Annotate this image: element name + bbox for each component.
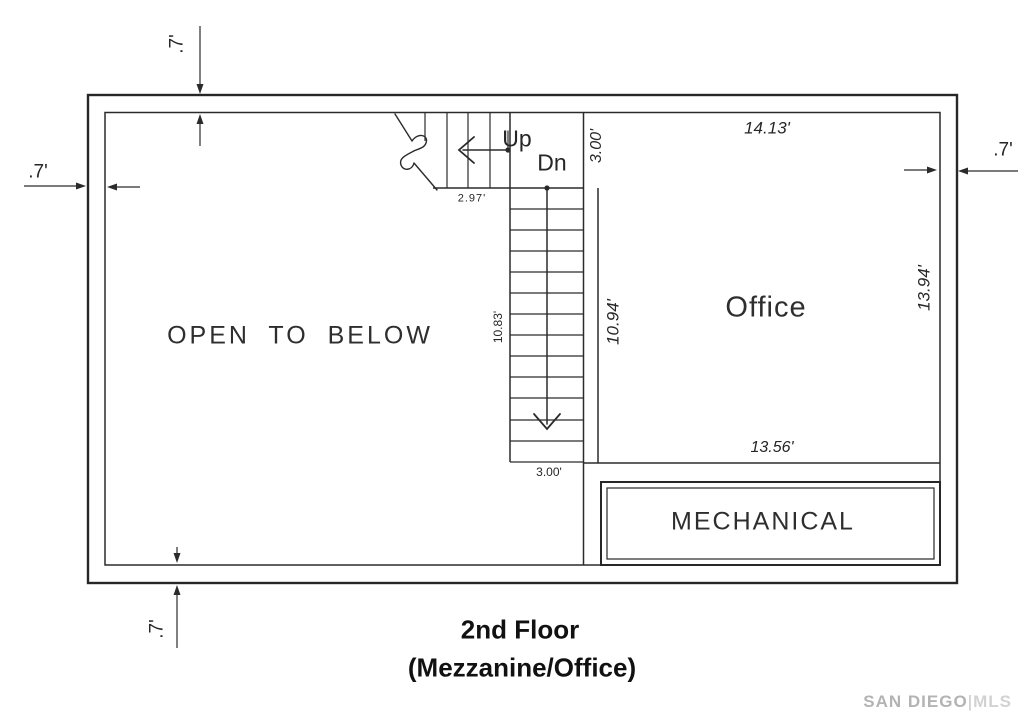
floor-plan-page: OPEN TO BELOW Office MECHANICAL Up Dn .7… <box>0 0 1024 717</box>
dim-stair-run-right: 10.94' <box>605 299 622 345</box>
dim-left-wall: .7' <box>28 163 47 182</box>
dim-arrow-left-wall <box>24 183 140 191</box>
dim-bottom-wall: .7' <box>148 619 167 638</box>
stair-break-line <box>395 114 437 190</box>
dim-office-top: 14.13' <box>744 120 790 137</box>
dim-stair-width-top: 3.00' <box>589 129 605 163</box>
plan-title-line2: (Mezzanine/Office) <box>408 653 636 684</box>
dim-arrow-bottom-wall <box>174 547 181 648</box>
mechanical-label: MECHANICAL <box>671 510 855 535</box>
dim-right-wall: .7' <box>993 141 1012 160</box>
dim-stair-landing: 2.97' <box>458 194 487 205</box>
watermark-name: SAN DIEGO <box>863 692 967 711</box>
watermark-suffix: MLS <box>973 692 1012 711</box>
plan-title-line1: 2nd Floor <box>461 615 579 646</box>
office-label: Office <box>725 294 806 323</box>
dim-stair-width-bottom: 3.00' <box>536 466 562 478</box>
dim-office-right: 13.94' <box>916 265 933 311</box>
partition-walls <box>433 113 940 565</box>
dim-stair-run-left: 10.83' <box>492 311 504 343</box>
floor-plan-drawing <box>0 0 1024 717</box>
dim-arrow-right-wall <box>904 167 1018 175</box>
open-to-below-label: OPEN TO BELOW <box>167 324 433 349</box>
dim-arrow-top-wall <box>197 26 204 146</box>
dim-top-wall: .7' <box>168 34 187 53</box>
stair-up-label: Up <box>502 128 531 151</box>
stair-down-label: Dn <box>537 152 566 175</box>
watermark: SAN DIEGO|MLS <box>863 692 1012 712</box>
dim-office-bottom: 13.56' <box>750 440 793 456</box>
down-arrow <box>534 185 560 429</box>
